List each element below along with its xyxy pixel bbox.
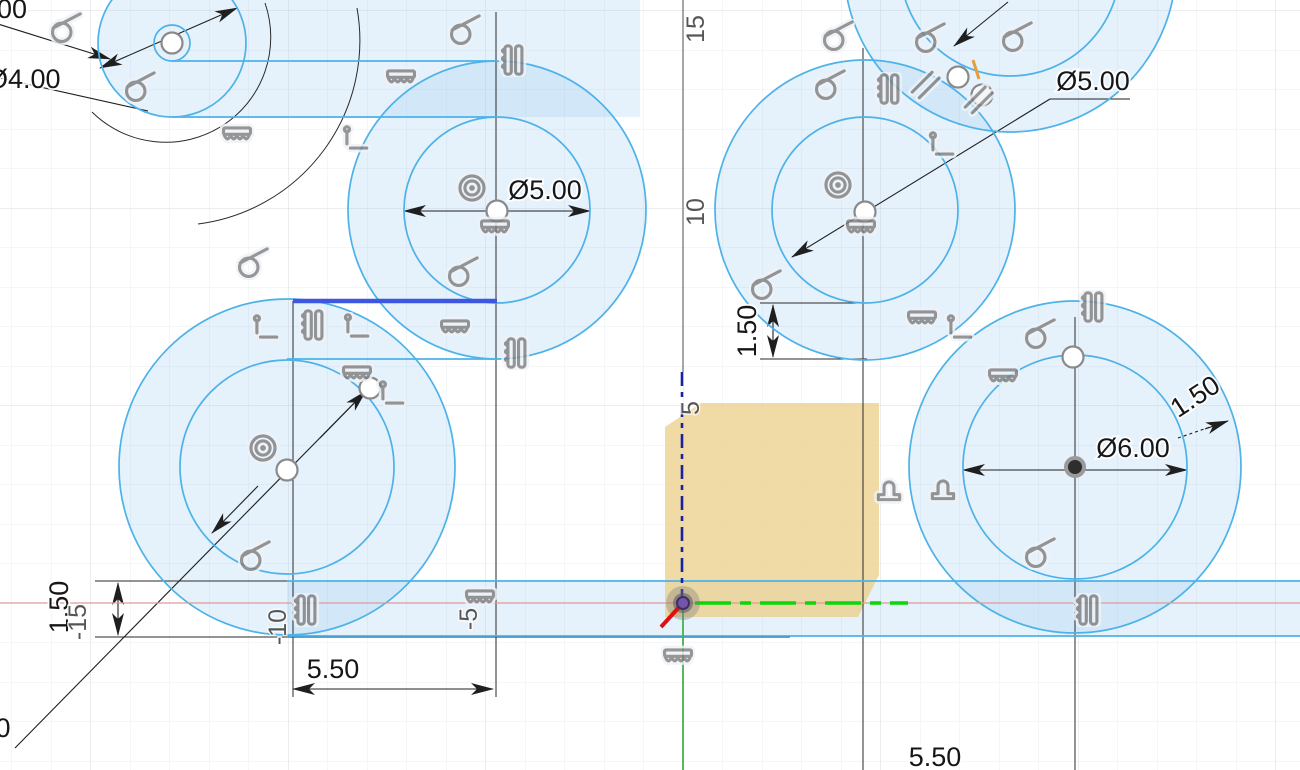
fix-constraint-icon[interactable] — [224, 128, 251, 139]
dim-label-ring-middle[interactable]: 1.50 — [732, 305, 762, 358]
dim-label-dia6[interactable]: Ø6.00 — [1096, 433, 1170, 463]
ruler-label-y5: 5 — [677, 401, 705, 415]
origin-point[interactable] — [677, 597, 689, 609]
sketch-center-point[interactable] — [1066, 458, 1084, 476]
ruler-label-xm5: -5 — [455, 608, 483, 630]
dim-label-dia5-middle[interactable]: Ø5.00 — [508, 175, 582, 205]
sketch-viewport[interactable]: 00 Ø4.00 Ø5.00 Ø5.00 Ø6.00 1.50 1.50 1.5… — [0, 0, 1300, 770]
collinear-constraint-icon[interactable] — [295, 596, 314, 624]
fix-constraint-icon[interactable] — [344, 367, 371, 378]
ruler-label-xm15: -15 — [64, 604, 92, 640]
fix-constraint-icon[interactable] — [467, 591, 494, 602]
selection-highlight-area — [665, 403, 879, 617]
collinear-constraint-icon[interactable] — [302, 311, 321, 339]
fix-constraint-icon[interactable] — [388, 71, 415, 82]
ruler-label-y10: 10 — [682, 198, 710, 226]
fix-constraint-icon[interactable] — [665, 650, 692, 661]
dim-label-bottom-partial[interactable]: 0 — [0, 713, 11, 743]
concentric-constraint-icon[interactable] — [826, 173, 850, 197]
sketch-point-handle[interactable] — [948, 67, 969, 88]
fix-constraint-icon[interactable] — [848, 221, 875, 232]
collinear-constraint-icon[interactable] — [878, 75, 897, 103]
collinear-constraint-icon[interactable] — [1077, 596, 1096, 624]
ruler-label-xm10: -10 — [264, 609, 292, 645]
fix-constraint-icon[interactable] — [482, 221, 509, 232]
fix-constraint-icon[interactable] — [909, 312, 936, 323]
dim-label-top-partial[interactable]: 00 — [0, 0, 27, 24]
sketch-point-handle[interactable] — [277, 460, 298, 481]
dim-label-spacing-left[interactable]: 5.50 — [307, 654, 360, 684]
concentric-constraint-icon[interactable] — [460, 176, 484, 200]
collinear-constraint-icon[interactable] — [502, 46, 521, 74]
concentric-constraint-icon[interactable] — [251, 436, 275, 460]
dim-label-spacing-center[interactable]: 5.50 — [909, 742, 962, 770]
selection-region — [665, 403, 879, 617]
collinear-constraint-icon[interactable] — [1082, 293, 1101, 321]
sketch-point-handle[interactable] — [1063, 347, 1084, 368]
sketch-canvas[interactable]: 00 Ø4.00 Ø5.00 Ø5.00 Ø6.00 1.50 1.50 1.5… — [0, 0, 1300, 770]
sketch-point-handle[interactable] — [162, 33, 183, 54]
ruler-label-y15: 15 — [682, 15, 710, 43]
dim-label-dia4[interactable]: Ø4.00 — [0, 64, 61, 94]
fix-constraint-icon[interactable] — [990, 370, 1017, 381]
dim-label-dia5-top-right[interactable]: Ø5.00 — [1056, 66, 1130, 96]
fix-constraint-icon[interactable] — [442, 321, 469, 332]
collinear-constraint-icon[interactable] — [505, 339, 524, 367]
